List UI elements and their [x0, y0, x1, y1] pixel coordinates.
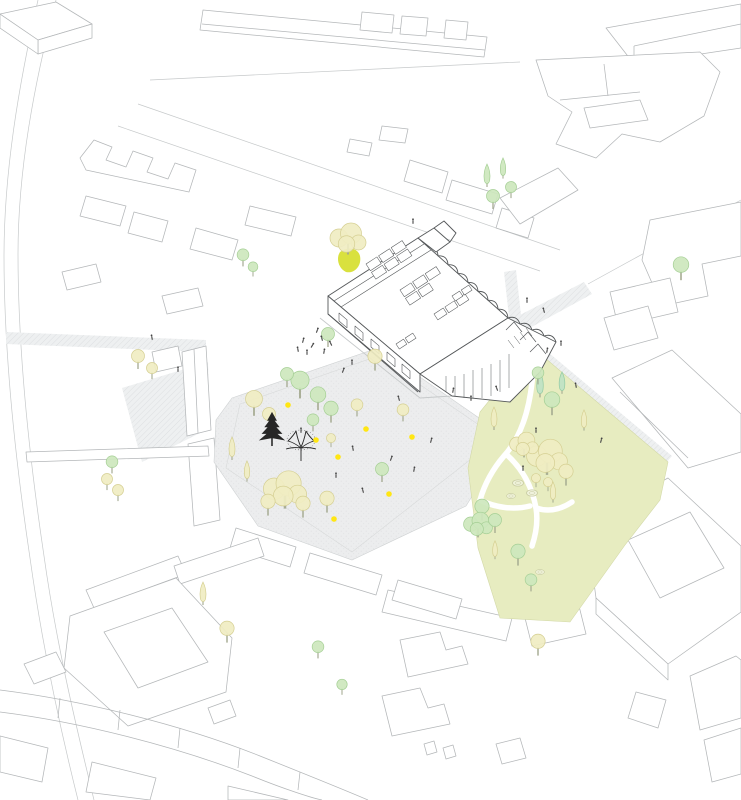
tree-cyp [484, 164, 490, 187]
tree-round [237, 249, 249, 267]
person-figure [526, 297, 528, 302]
person-figure [329, 340, 333, 346]
bottom-left-row-b [86, 762, 156, 800]
west-plaza-strip-a [182, 346, 211, 436]
upper-mid-block-b [347, 139, 372, 156]
right-mid-block-c [604, 306, 658, 350]
rowhouses-upper-left-2b [128, 212, 168, 242]
yellow-dot [313, 437, 319, 443]
person-figure [316, 327, 320, 333]
south-plaza-row-b [304, 553, 382, 595]
tree-shrub [513, 480, 524, 486]
bottom-center-piece-c [496, 738, 526, 764]
tree-round [337, 679, 347, 695]
top-bar-body [200, 10, 487, 57]
tree-shrub [507, 493, 516, 498]
bottom-center-piece-b [382, 688, 450, 736]
bottom-center-piece-a [400, 632, 468, 677]
person-figure [306, 349, 308, 354]
tree-round [312, 641, 324, 659]
top-bar-step2 [400, 16, 428, 36]
tree-round [101, 474, 112, 491]
yellow-dot [331, 516, 337, 522]
yellow-dot [363, 426, 369, 432]
tree-round [146, 363, 157, 380]
yellow-dot [335, 454, 341, 460]
bottom-right-corner-b [628, 692, 666, 728]
tree-shrub [536, 569, 545, 574]
bottom-left-bar-b [174, 538, 264, 584]
rowhouses-upper-left-2c [190, 228, 238, 260]
person-figure [302, 337, 305, 343]
person-figure [412, 218, 414, 223]
rowhouses-upper-left-2d [245, 206, 296, 236]
bottom-left-row-c [228, 786, 288, 800]
tree-round [531, 634, 545, 655]
tree-round [112, 485, 123, 502]
bottom-left-row-a [0, 736, 48, 782]
rowhouses-upper-left-2a [80, 196, 126, 226]
street-under-top-bar [150, 62, 520, 80]
tree-cyp [500, 158, 505, 179]
upper-mid-zigzag-a [404, 160, 448, 193]
yellow-dot [409, 434, 415, 440]
rowhouses-upper-left [80, 140, 196, 192]
bottom-left-small-b [208, 700, 236, 724]
site-plan [0, 0, 741, 800]
bottom-center-tiny-a [424, 741, 437, 755]
person-figure [310, 342, 314, 348]
tree-round [132, 350, 145, 370]
street-band-northeast [518, 282, 592, 330]
person-figure [560, 340, 562, 345]
site-plan-canvas [0, 0, 741, 800]
top-bar-step1 [360, 12, 394, 33]
tree-shrub [527, 490, 538, 496]
plinth-curve-lower [0, 712, 322, 800]
tree-cyp [200, 582, 206, 605]
bottom-center-tiny-b [443, 745, 456, 759]
tree-round [322, 328, 335, 348]
tree-round [106, 456, 118, 474]
yellow-dot [386, 491, 392, 497]
tree-cloud [330, 223, 366, 255]
mid-left-piece-b [162, 288, 203, 314]
upper-mid-block-a [379, 126, 408, 143]
top-bar-step3 [444, 20, 468, 40]
bottom-right-corner-a [690, 656, 741, 730]
yellow-dot [285, 402, 291, 408]
person-figure [296, 346, 299, 352]
person-figure [323, 348, 326, 354]
bottom-left-small-a [24, 652, 66, 684]
bottom-right-corner-c [704, 728, 741, 782]
tree-round [248, 262, 258, 277]
mid-left-piece-a [62, 264, 101, 290]
